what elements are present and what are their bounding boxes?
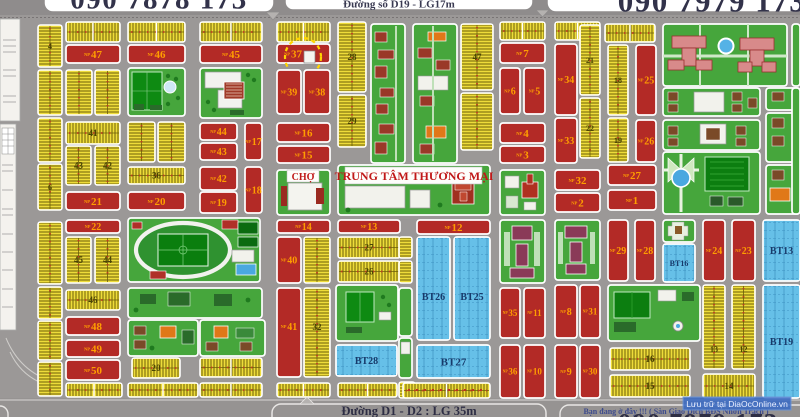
svg-text:CHỢ: CHỢ xyxy=(292,172,315,183)
svg-text:BT13: BT13 xyxy=(770,246,793,257)
svg-text:BT28: BT28 xyxy=(355,356,378,367)
svg-text:41: 41 xyxy=(89,128,99,138)
svg-text:TRUNG TÂM THƯƠNG MẠI: TRUNG TÂM THƯƠNG MẠI xyxy=(335,169,494,183)
svg-text:20: 20 xyxy=(152,363,162,373)
svg-text:19: 19 xyxy=(614,136,622,145)
svg-text:44: 44 xyxy=(103,255,113,265)
svg-text:BT19: BT19 xyxy=(770,337,793,348)
svg-text:28: 28 xyxy=(348,52,358,62)
svg-text:21: 21 xyxy=(586,56,594,65)
svg-text:43: 43 xyxy=(74,161,84,171)
svg-text:27: 27 xyxy=(365,243,375,253)
svg-text:47: 47 xyxy=(473,52,483,62)
svg-text:6: 6 xyxy=(48,183,52,192)
svg-text:46: 46 xyxy=(89,295,99,305)
svg-text:29: 29 xyxy=(348,116,358,126)
svg-text:Đường số D19 - LG17m: Đường số D19 - LG17m xyxy=(343,0,455,11)
svg-text:BT16: BT16 xyxy=(670,259,689,268)
svg-text:090 7878 173: 090 7878 173 xyxy=(70,0,248,16)
svg-text:BT25: BT25 xyxy=(460,292,483,303)
svg-text:32: 32 xyxy=(313,322,323,332)
svg-text:15: 15 xyxy=(646,381,656,391)
svg-text:Đường D1 - D2 : LG 35m: Đường D1 - D2 : LG 35m xyxy=(341,404,477,417)
svg-text:42: 42 xyxy=(103,161,113,171)
svg-text:4: 4 xyxy=(48,42,52,51)
svg-text:36: 36 xyxy=(152,171,162,181)
svg-text:BT27: BT27 xyxy=(441,357,467,369)
svg-text:45: 45 xyxy=(74,255,84,265)
svg-text:13: 13 xyxy=(710,345,718,354)
svg-text:BT26: BT26 xyxy=(422,292,445,303)
svg-text:26: 26 xyxy=(365,267,375,277)
svg-text:22: 22 xyxy=(586,124,594,133)
svg-text:12: 12 xyxy=(740,345,748,354)
svg-text:18: 18 xyxy=(614,76,622,85)
svg-text:14: 14 xyxy=(725,381,735,391)
svg-text:Lưu trữ tại DiaOcOnline.vn: Lưu trữ tại DiaOcOnline.vn xyxy=(686,399,788,409)
svg-text:16: 16 xyxy=(646,354,656,364)
svg-text:090 7979 173: 090 7979 173 xyxy=(618,0,800,19)
